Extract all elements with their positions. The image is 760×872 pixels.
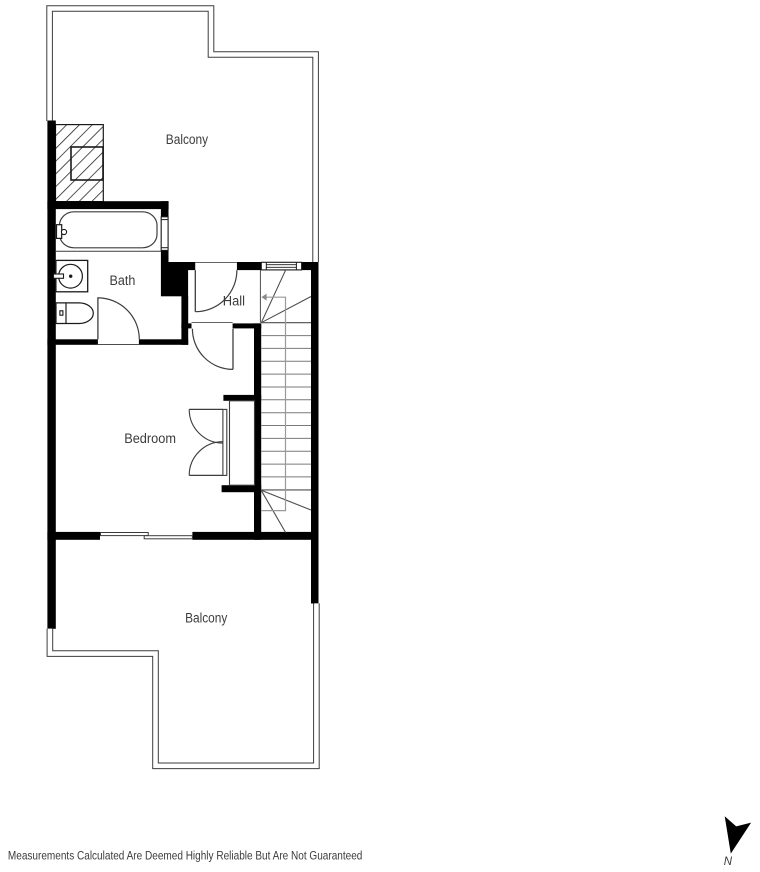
- svg-text:Hall: Hall: [223, 294, 245, 310]
- svg-text:Measurements Calculated Are De: Measurements Calculated Are Deemed Highl…: [8, 848, 363, 862]
- svg-text:N: N: [724, 856, 733, 868]
- svg-text:Bath: Bath: [110, 273, 136, 289]
- svg-text:Balcony: Balcony: [185, 611, 228, 627]
- svg-text:Balcony: Balcony: [166, 132, 209, 148]
- svg-text:Bedroom: Bedroom: [124, 431, 176, 447]
